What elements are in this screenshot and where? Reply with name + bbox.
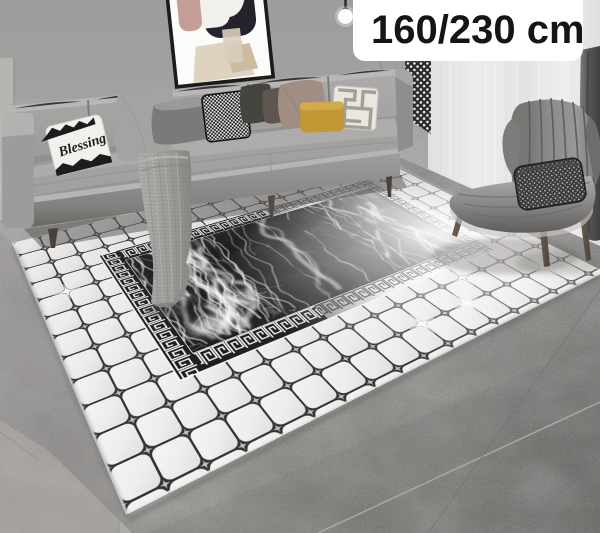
svg-text:160/230 cm: 160/230 cm [371, 8, 585, 52]
